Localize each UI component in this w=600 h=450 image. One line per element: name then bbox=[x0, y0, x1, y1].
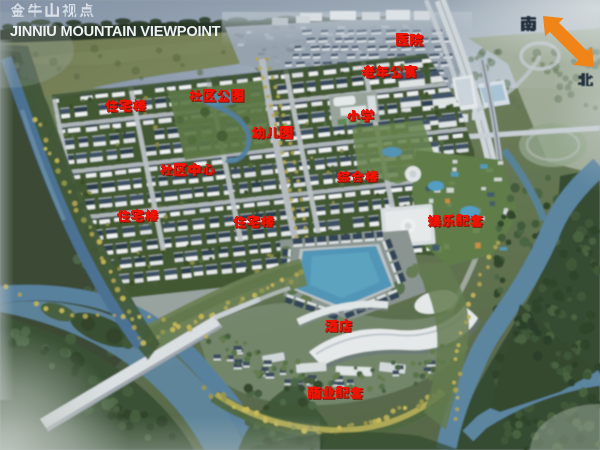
svg-text:JINNIU MOUNTAIN VIEWPOINT: JINNIU MOUNTAIN VIEWPOINT bbox=[10, 24, 221, 40]
